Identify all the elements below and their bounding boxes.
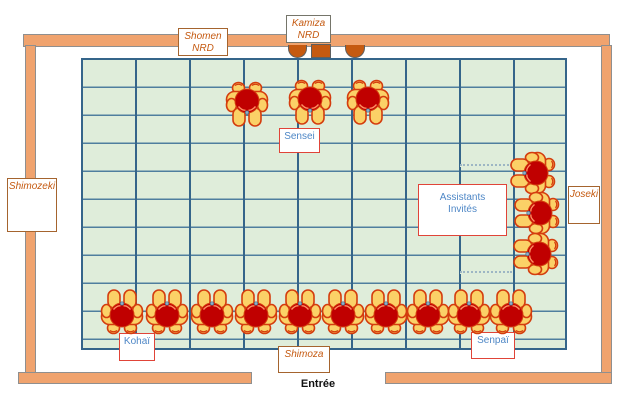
dashed-mat-line	[460, 164, 512, 167]
label-entree: Entrée	[284, 378, 352, 390]
label-joseki: Joseki	[568, 186, 600, 224]
label-assistants-invites: Assistants Invités	[418, 184, 507, 236]
kamiza-ornament-left-icon	[288, 45, 307, 58]
label-kohai: Kohaï	[119, 333, 155, 361]
wall-bottom-right	[385, 372, 612, 384]
label-sensei: Sensei	[279, 128, 320, 153]
label-kamiza: Kamiza NRD	[286, 15, 331, 43]
label-shimozeki: Shimozeki	[7, 178, 57, 232]
wall-bottom-left	[18, 372, 252, 384]
label-senpai: Senpaï	[471, 332, 515, 359]
dojo-floor-plan: Shomen NRD Kamiza NRD Shimozeki Joseki S…	[0, 0, 628, 400]
wall-right	[601, 45, 612, 373]
kamiza-ornament-center-icon	[311, 44, 331, 58]
label-shomen: Shomen NRD	[178, 28, 228, 56]
label-shimoza: Shimoza	[278, 346, 330, 373]
dashed-mat-line	[460, 271, 512, 274]
kamiza-ornament-right-icon	[345, 45, 365, 58]
